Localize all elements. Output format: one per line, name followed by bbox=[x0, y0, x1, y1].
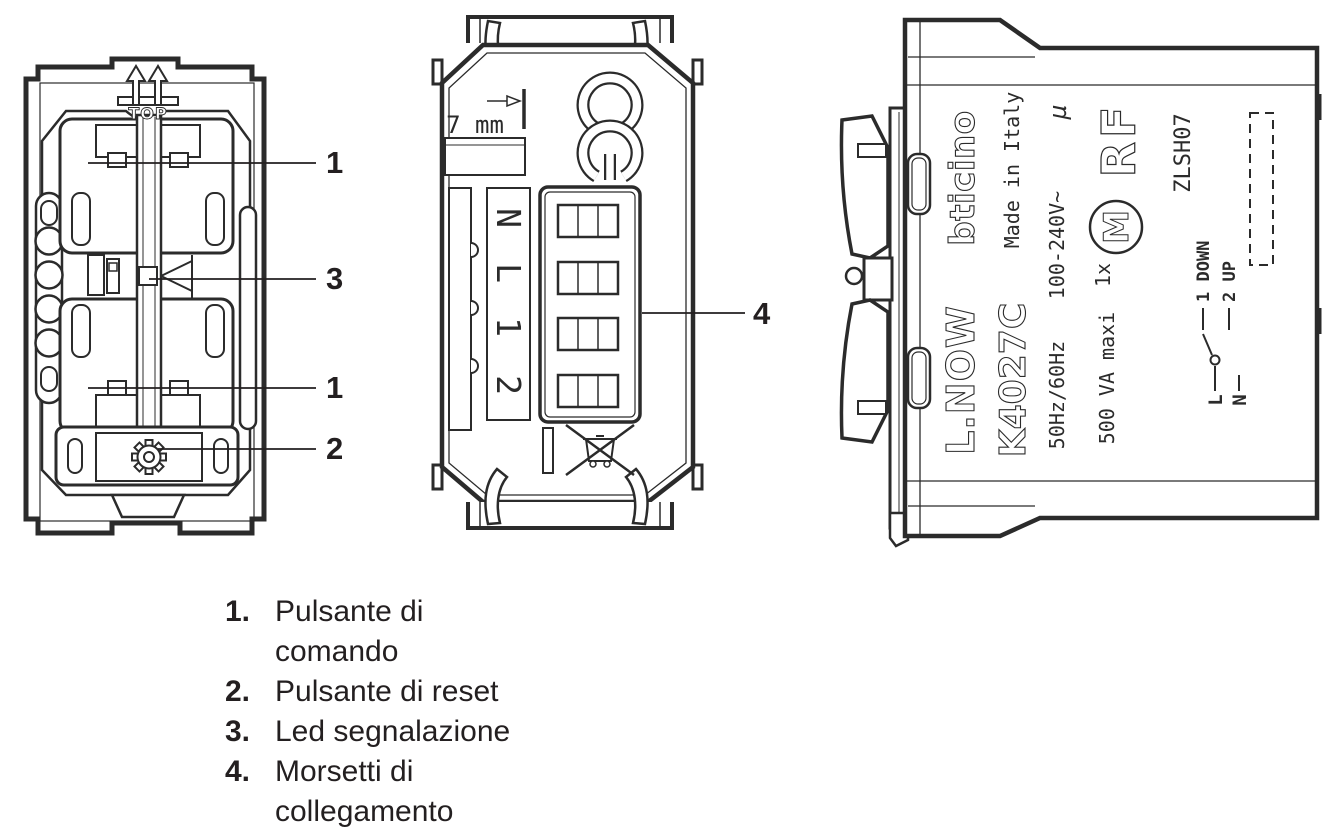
legend: 1. Pulsante di comando 2. Pulsante di re… bbox=[225, 592, 605, 832]
motor-count-label: 1x bbox=[1091, 263, 1115, 287]
actuator-shaft bbox=[137, 115, 161, 461]
plate-foot bbox=[112, 495, 184, 517]
legend-number: 3. bbox=[225, 712, 275, 752]
origin-label: Made in Italy bbox=[1000, 92, 1024, 249]
legend-item: 2. Pulsante di reset bbox=[225, 672, 605, 712]
legend-label: Morsetti di collegamento bbox=[275, 752, 605, 832]
terminal-screw bbox=[558, 318, 618, 350]
motor-mark-icon: M bbox=[1097, 210, 1137, 244]
legend-item: 3. Led segnalazione bbox=[225, 712, 605, 752]
rear-view-figure: 7 mm N L 1 2 4 bbox=[425, 5, 770, 550]
legend-number: 1. bbox=[225, 592, 275, 672]
callout-number-1b: 1 bbox=[326, 370, 343, 405]
stripping-gauge-window bbox=[445, 138, 525, 175]
terminal-block bbox=[540, 187, 640, 422]
legend-item: 1. Pulsante di comando bbox=[225, 592, 605, 672]
front-view-figure: TOP 1 3 1 2 bbox=[8, 55, 348, 545]
bottom-bar bbox=[543, 428, 553, 473]
terminal-label-1: 1 bbox=[489, 317, 528, 337]
wiring-l-label: L bbox=[1205, 394, 1227, 405]
terminal-screw bbox=[558, 262, 618, 294]
legend-label: Led segnalazione bbox=[275, 712, 605, 752]
legend-label: Pulsante di comando bbox=[275, 592, 605, 672]
callout-number-4: 4 bbox=[753, 296, 771, 331]
brand-logo: bticino bbox=[943, 110, 983, 245]
wiring-n-label: N bbox=[1229, 394, 1251, 405]
gear-icon bbox=[132, 440, 166, 474]
rf-label: RF bbox=[1092, 103, 1146, 178]
terminal-screw bbox=[558, 205, 618, 237]
right-slot bbox=[240, 207, 256, 429]
side-hole-strip bbox=[36, 193, 63, 403]
top-label: TOP bbox=[128, 104, 167, 123]
series-label: L.NOW bbox=[939, 305, 983, 455]
callout-number-2: 2 bbox=[326, 431, 343, 466]
legend-label: Pulsante di reset bbox=[275, 672, 605, 712]
side-view-figure: L.NOW bticino K4027C Made in Italy 50Hz/… bbox=[820, 8, 1332, 553]
callout-number-3: 3 bbox=[326, 261, 343, 296]
terminal-label-2: 2 bbox=[489, 375, 528, 395]
terminal-screw bbox=[558, 375, 618, 407]
frequency-label: 50Hz/60Hz bbox=[1045, 341, 1069, 449]
legend-item: 4. Morsetti di collegamento bbox=[225, 752, 605, 832]
model-label: K4027C bbox=[993, 303, 1034, 458]
wiring-down-label: 1 DOWN bbox=[1194, 241, 1214, 302]
micro-gap-symbol: µ bbox=[1044, 105, 1072, 120]
terminal-label-l: L bbox=[489, 263, 528, 283]
voltage-label: 100-240V~ bbox=[1045, 191, 1069, 299]
callout-number-1a: 1 bbox=[326, 145, 343, 180]
side-tab bbox=[693, 60, 702, 84]
side-tab bbox=[433, 60, 442, 84]
spring-clip bbox=[841, 108, 908, 546]
strip-gauge-label: 7 mm bbox=[446, 111, 504, 139]
terminal-label-n: N bbox=[489, 208, 528, 228]
power-label: 500 VA maxi bbox=[1095, 312, 1119, 444]
legend-number: 2. bbox=[225, 672, 275, 712]
wiring-up-label: 2 UP bbox=[1220, 261, 1240, 302]
legend-number: 4. bbox=[225, 752, 275, 832]
code-label: ZLSH07 bbox=[1171, 113, 1196, 192]
reset-module bbox=[56, 427, 238, 485]
